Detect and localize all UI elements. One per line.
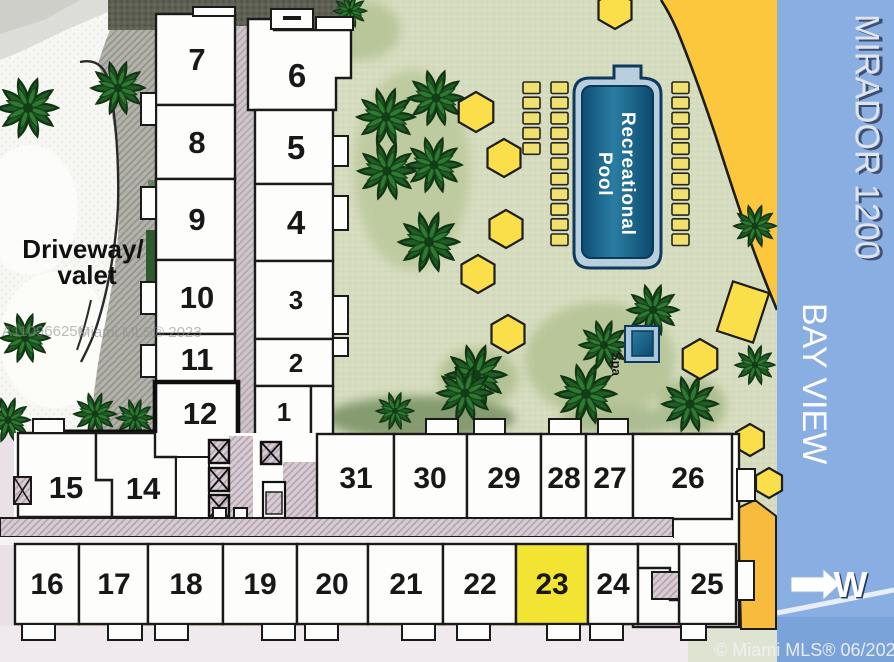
svg-text:28: 28 — [547, 462, 580, 495]
svg-text:7: 7 — [188, 42, 205, 77]
svg-text:11: 11 — [181, 342, 214, 377]
svg-text:19: 19 — [243, 568, 276, 601]
svg-text:© Miami MLS® 06/2021: © Miami MLS® 06/2021 — [714, 640, 894, 660]
svg-text:2: 2 — [289, 348, 303, 378]
svg-text:9: 9 — [188, 202, 205, 237]
svg-text:6: 6 — [288, 57, 306, 94]
svg-text:20: 20 — [315, 568, 348, 601]
svg-text:valet: valet — [57, 260, 117, 290]
svg-text:18: 18 — [169, 568, 202, 601]
svg-text:29: 29 — [487, 462, 520, 495]
svg-text:26: 26 — [671, 462, 704, 495]
svg-text:5: 5 — [287, 129, 305, 166]
svg-text:12: 12 — [183, 396, 217, 431]
svg-text:W: W — [834, 564, 868, 605]
svg-text:4: 4 — [287, 204, 306, 241]
svg-text:Pool: Pool — [594, 152, 615, 196]
svg-text:Spa: Spa — [609, 352, 624, 377]
svg-text:Miami MLS® 2023: Miami MLS® 2023 — [78, 324, 202, 341]
svg-text:BAY VIEW: BAY VIEW — [795, 303, 833, 464]
svg-text:14: 14 — [126, 471, 161, 506]
svg-text:31: 31 — [339, 462, 372, 495]
svg-text:1: 1 — [277, 397, 291, 427]
svg-text:16: 16 — [30, 568, 63, 601]
svg-text:30: 30 — [413, 462, 446, 495]
svg-text:MIRADOR 1200: MIRADOR 1200 — [848, 14, 886, 260]
svg-text:24: 24 — [596, 568, 630, 601]
svg-text:23: 23 — [535, 568, 568, 601]
svg-text:10: 10 — [180, 280, 214, 315]
svg-text:15: 15 — [49, 470, 83, 505]
svg-text:8: 8 — [188, 125, 205, 160]
svg-text:27: 27 — [593, 462, 626, 495]
svg-text:A11096625©: A11096625© — [2, 323, 89, 340]
svg-text:22: 22 — [463, 568, 496, 601]
svg-text:25: 25 — [690, 568, 723, 601]
svg-text:3: 3 — [289, 285, 303, 315]
svg-text:21: 21 — [389, 568, 422, 601]
svg-text:17: 17 — [97, 568, 130, 601]
svg-text:Recreational: Recreational — [617, 112, 638, 236]
